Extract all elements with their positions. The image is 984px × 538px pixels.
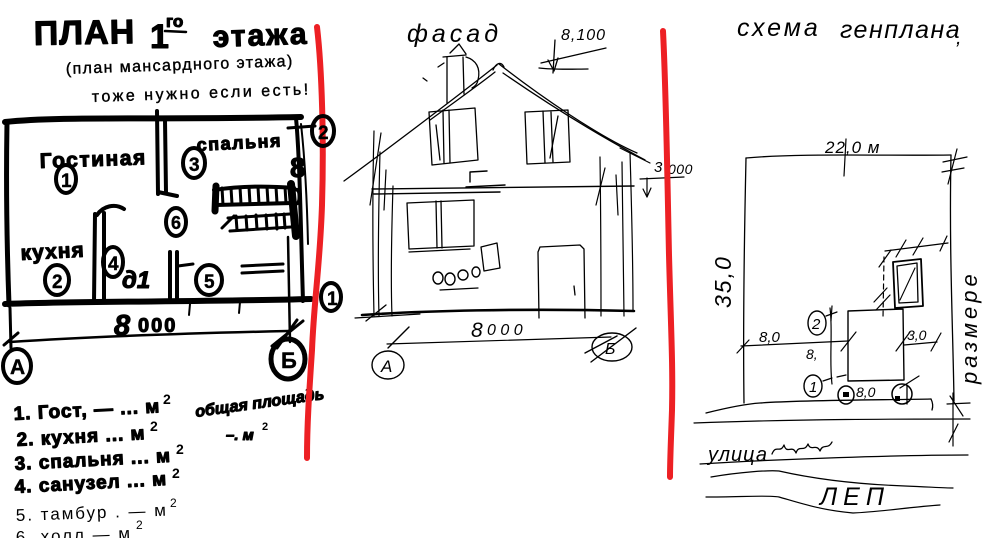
svg-text:го: го [166, 12, 183, 31]
svg-text:Гостиная: Гостиная [39, 146, 147, 173]
svg-text:размере: размере [957, 270, 982, 385]
svg-text:5: 5 [204, 272, 215, 293]
svg-text:8,100: 8,100 [561, 27, 606, 44]
svg-text:д1: д1 [122, 267, 150, 294]
svg-text:000: 000 [668, 161, 693, 177]
svg-text:0: 0 [289, 184, 302, 211]
svg-text:6: 6 [171, 213, 181, 233]
svg-text:22,0 м: 22,0 м [824, 138, 880, 157]
svg-text:кухня: кухня [20, 239, 85, 265]
svg-text:2: 2 [811, 316, 821, 333]
svg-text:2: 2 [176, 441, 184, 457]
svg-text:1: 1 [809, 379, 817, 396]
svg-text:2: 2 [52, 272, 63, 293]
svg-text:3,0: 3,0 [907, 327, 927, 343]
svg-text:А: А [380, 357, 392, 376]
svg-text:ПЛАН: ПЛАН [33, 13, 135, 53]
svg-text:4: 4 [108, 254, 119, 275]
svg-text:2: 2 [318, 123, 329, 144]
svg-text:генплана: генплана [840, 16, 961, 44]
svg-text:–. м: –. м [226, 427, 254, 444]
svg-text:А: А [10, 356, 25, 379]
svg-text:8,0: 8,0 [856, 384, 876, 400]
svg-text:,: , [956, 27, 962, 49]
svg-text:1: 1 [61, 171, 72, 192]
svg-text:ЛЕП: ЛЕП [818, 483, 890, 511]
svg-text:1: 1 [327, 289, 338, 310]
svg-text:35,0: 35,0 [710, 255, 736, 308]
svg-text:8,0: 8,0 [759, 329, 781, 346]
svg-text:000: 000 [487, 322, 527, 339]
svg-text:000: 000 [138, 315, 177, 337]
svg-text:этажа: этажа [212, 18, 309, 54]
svg-text:3: 3 [654, 159, 663, 176]
svg-text:8: 8 [114, 310, 131, 342]
svg-text:схема: схема [737, 14, 821, 42]
svg-text:8,: 8, [806, 346, 818, 362]
svg-text:2: 2 [170, 496, 177, 510]
svg-text:2: 2 [150, 418, 158, 434]
svg-text:2: 2 [136, 518, 143, 532]
svg-text:3: 3 [189, 155, 200, 176]
svg-text:2: 2 [262, 421, 268, 433]
svg-text:2: 2 [163, 391, 171, 407]
svg-text:фасад: фасад [407, 20, 502, 48]
svg-text:2: 2 [172, 465, 180, 481]
svg-text:Б: Б [281, 348, 297, 373]
svg-text:8: 8 [471, 319, 483, 342]
svg-text:8: 8 [290, 152, 306, 183]
